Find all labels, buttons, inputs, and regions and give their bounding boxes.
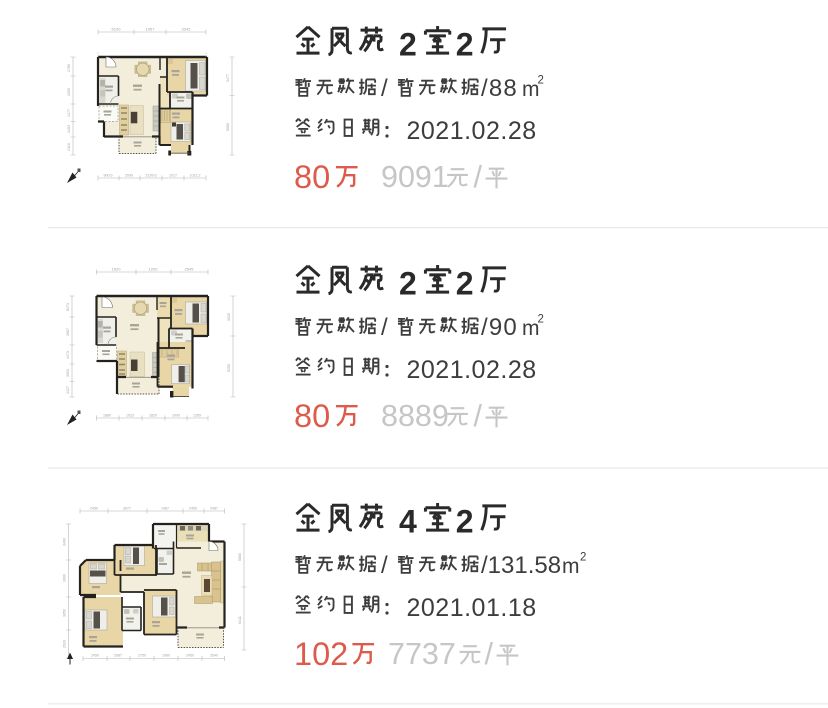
svg-text:9091: 9091: [381, 160, 449, 194]
svg-text:2021.01.18: 2021.01.18: [407, 594, 537, 622]
svg-text:/: /: [381, 314, 388, 341]
svg-text:2750: 2750: [138, 654, 146, 658]
svg-text:7737: 7737: [388, 637, 456, 671]
svg-text:8173: 8173: [66, 303, 70, 311]
svg-text:80: 80: [294, 398, 330, 434]
svg-text:2: 2: [399, 266, 417, 302]
svg-text:5080: 5080: [226, 123, 230, 131]
svg-text:1009: 1009: [172, 414, 180, 418]
svg-text:1957: 1957: [146, 27, 156, 32]
svg-text:m: m: [562, 555, 580, 578]
svg-text:3020: 3020: [227, 313, 231, 321]
svg-text:1200: 1200: [149, 267, 159, 272]
svg-text:2545: 2545: [185, 267, 195, 272]
svg-text:3650: 3650: [63, 609, 67, 617]
svg-text:1017: 1017: [169, 174, 177, 178]
svg-text:2450: 2450: [189, 507, 197, 511]
svg-text:2450: 2450: [186, 654, 194, 658]
svg-text:2: 2: [456, 266, 474, 302]
svg-text:1427: 1427: [66, 386, 70, 394]
svg-text:3003: 3003: [66, 369, 70, 377]
svg-text:6411: 6411: [238, 616, 242, 624]
svg-text:/: /: [474, 160, 483, 194]
svg-text:2: 2: [538, 75, 544, 87]
svg-text:2199.6: 2199.6: [146, 174, 157, 178]
svg-text:1880: 1880: [103, 414, 111, 418]
svg-text:2: 2: [399, 27, 417, 63]
svg-text:80: 80: [294, 159, 330, 195]
svg-text:8889: 8889: [381, 399, 449, 433]
svg-text:1403: 1403: [67, 125, 71, 133]
svg-text:2: 2: [456, 504, 474, 540]
svg-text:3342: 3342: [182, 27, 192, 32]
svg-text:2099: 2099: [125, 174, 133, 178]
svg-text:1359: 1359: [193, 414, 201, 418]
svg-text:2487: 2487: [210, 507, 218, 511]
svg-text:2687: 2687: [114, 654, 122, 658]
svg-text:2110: 2110: [67, 143, 71, 151]
svg-text:3460: 3460: [63, 538, 67, 546]
svg-text:3477: 3477: [226, 74, 230, 82]
svg-text:3060: 3060: [63, 574, 67, 582]
svg-text:3977: 3977: [123, 507, 131, 511]
svg-text:4473: 4473: [66, 351, 70, 359]
svg-text:3540: 3540: [210, 654, 218, 658]
svg-text:/88: /88: [481, 75, 518, 102]
svg-text:/: /: [474, 399, 483, 433]
svg-text:900.6: 900.6: [104, 174, 113, 178]
svg-text:/: /: [381, 552, 388, 579]
svg-text:4: 4: [399, 504, 417, 540]
svg-text:1023: 1023: [126, 414, 134, 418]
svg-text:2450: 2450: [90, 507, 98, 511]
svg-text:2: 2: [580, 552, 586, 564]
svg-text:2780: 2780: [67, 64, 71, 72]
svg-text:2: 2: [456, 27, 474, 63]
svg-text:3987: 3987: [66, 328, 70, 336]
svg-text:5100: 5100: [112, 27, 122, 32]
svg-text:/131.58: /131.58: [481, 552, 561, 579]
svg-text:2920: 2920: [63, 640, 67, 648]
svg-text:5150: 5150: [227, 364, 231, 372]
svg-text:2: 2: [538, 314, 544, 326]
svg-text:2350: 2350: [67, 88, 71, 96]
svg-text:1012.2: 1012.2: [190, 174, 201, 178]
svg-text:/: /: [381, 75, 388, 102]
svg-text:102: 102: [294, 636, 348, 672]
svg-text:2021.02.28: 2021.02.28: [407, 117, 537, 145]
svg-text:/90: /90: [481, 314, 518, 341]
svg-text:1620: 1620: [112, 267, 122, 272]
svg-text:1477: 1477: [67, 109, 71, 117]
svg-text:5880: 5880: [238, 553, 242, 561]
svg-text:1487: 1487: [161, 507, 169, 511]
svg-text:2450: 2450: [91, 654, 99, 658]
svg-text:1960: 1960: [162, 654, 170, 658]
svg-text:2021.02.28: 2021.02.28: [407, 356, 537, 384]
svg-text:/: /: [485, 637, 494, 671]
svg-text:1820: 1820: [149, 414, 157, 418]
